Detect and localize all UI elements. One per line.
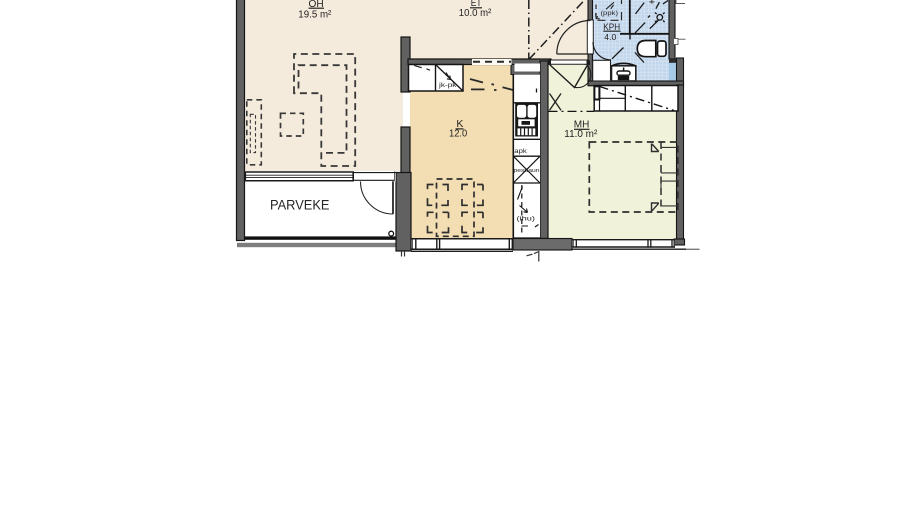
svg-text:19.5 m²: 19.5 m² bbox=[298, 10, 332, 21]
svg-text:11.0 m²: 11.0 m² bbox=[564, 129, 598, 140]
svg-text:(ihu): (ihu) bbox=[517, 217, 536, 223]
svg-text:10.0 m²: 10.0 m² bbox=[459, 8, 492, 19]
svg-text:4.0: 4.0 bbox=[604, 32, 616, 42]
svg-text:12.0: 12.0 bbox=[449, 129, 468, 140]
svg-text:KPH: KPH bbox=[603, 22, 620, 32]
svg-text:apk: apk bbox=[514, 149, 528, 155]
svg-text:jk-pk: jk-pk bbox=[438, 83, 458, 89]
svg-text:PARVEKE: PARVEKE bbox=[270, 197, 330, 213]
svg-text:pesuaun: pesuaun bbox=[514, 168, 540, 174]
svg-text:(ppk): (ppk) bbox=[601, 11, 619, 17]
